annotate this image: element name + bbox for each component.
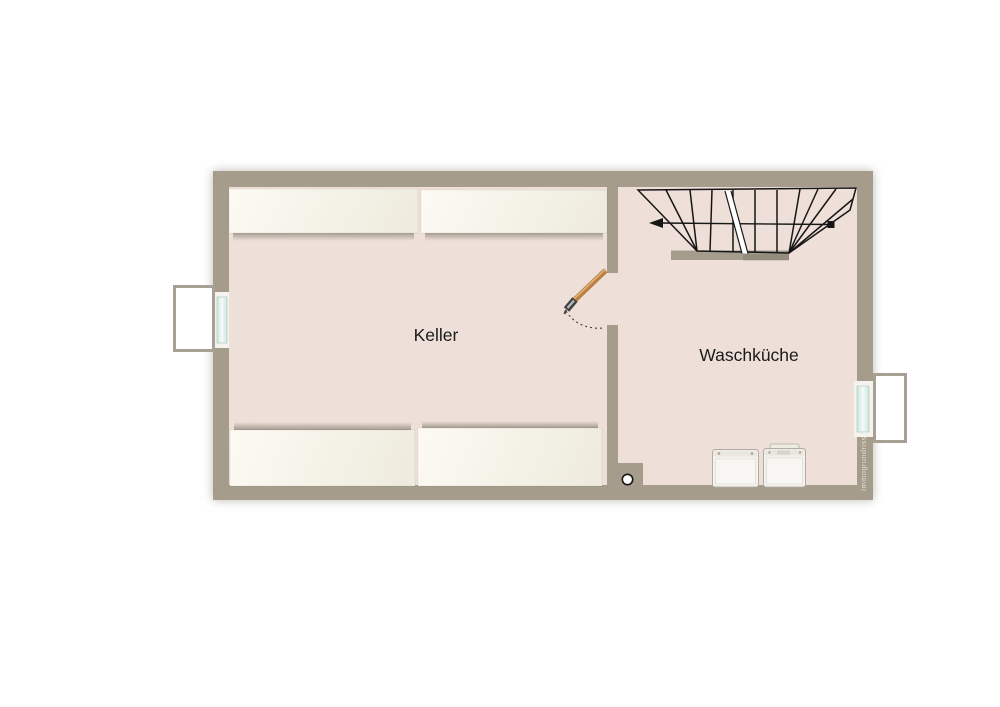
- shelf-bottom-left: [230, 430, 415, 486]
- shelf-top-left: [229, 189, 418, 233]
- watermark-text: Immogrundriss: [859, 436, 868, 491]
- light-shaft-left: [175, 287, 214, 351]
- room-label-keller: Keller: [414, 325, 459, 345]
- window-glass-left: [217, 297, 227, 343]
- floor-plan-svg: Keller Waschküche Immogrundriss: [0, 0, 1000, 707]
- window-glass-right: [857, 386, 869, 432]
- light-shaft-right: [875, 375, 906, 442]
- shelf-top-right: [421, 190, 607, 233]
- floor-plan-page: Keller Waschküche Immogrundriss: [0, 0, 1000, 707]
- washing-machine-2: [764, 444, 806, 487]
- floor-drain: [622, 474, 632, 484]
- washing-machine-1: [713, 450, 759, 488]
- stair-start-marker: [828, 221, 835, 228]
- window-left: [175, 287, 230, 351]
- shelf-bottom-right: [418, 428, 602, 486]
- window-right: [854, 375, 906, 442]
- room-label-waschkueche: Waschküche: [699, 345, 799, 365]
